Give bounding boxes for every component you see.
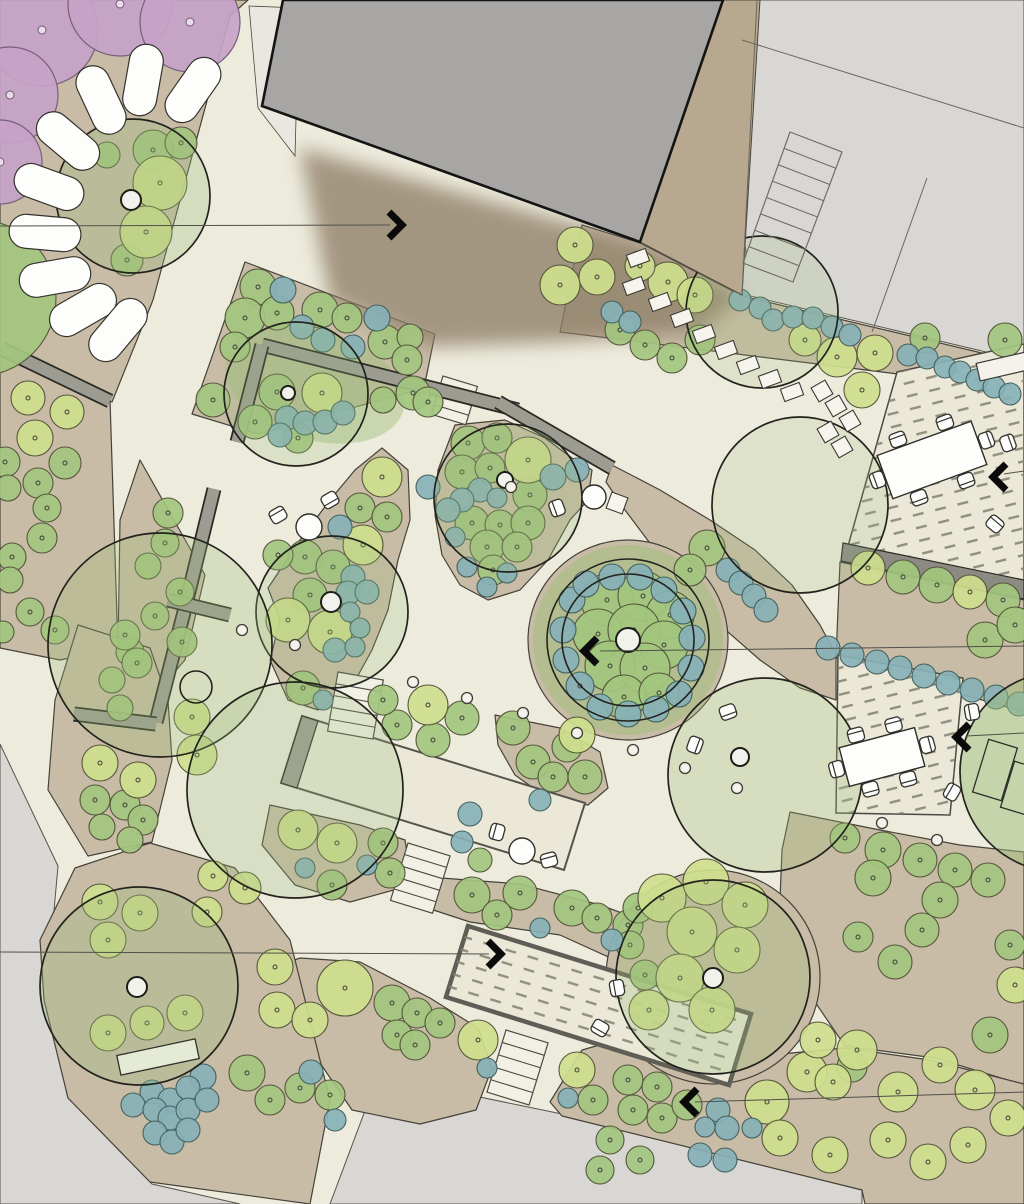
shrub-blue-circle (619, 311, 641, 333)
tree-trunk (281, 386, 295, 400)
shrub-blue-circle (688, 1143, 712, 1167)
path-light (462, 693, 473, 704)
shrub-green-circle (416, 723, 450, 757)
shrub-yellow-green-circle (557, 227, 593, 263)
shrub-yellow-green-circle (953, 575, 987, 609)
round-table (509, 838, 535, 864)
shrub-green-circle (972, 1017, 1008, 1053)
shrub-blue-circle (477, 577, 497, 597)
shrub-green-circle (117, 827, 143, 853)
shrub-green-circle (568, 760, 602, 794)
shrub-green-circle (538, 762, 568, 792)
path-light (877, 818, 888, 829)
white-pill-shrub (8, 213, 83, 253)
shrub-green-circle (988, 323, 1022, 357)
round-table (582, 485, 606, 509)
shrub-blue-circle (960, 678, 984, 702)
shrub-green-circle (482, 900, 512, 930)
shrub-blue-circle (558, 1088, 578, 1108)
purple-tree-center (116, 0, 124, 8)
shrub-blue-circle (670, 598, 696, 624)
shrub-blue-circle (888, 656, 912, 680)
shrub-green-circle (413, 387, 443, 417)
shrub-blue-circle (195, 1088, 219, 1112)
shrub-green-circle (153, 498, 183, 528)
tree-canopy (224, 322, 368, 466)
shrub-blue-circle (865, 650, 889, 674)
shrub-yellow-green-circle (362, 457, 402, 497)
shrub-yellow-green-circle (50, 395, 84, 429)
purple-tree-center (38, 26, 46, 34)
shrub-green-circle (886, 560, 920, 594)
shrub-green-circle (582, 903, 612, 933)
shrub-yellow-green-circle (990, 1100, 1024, 1136)
shrub-blue-circle (912, 664, 936, 688)
shrub-green-circle (425, 1008, 455, 1038)
tree-canopy (187, 682, 403, 898)
path-light (680, 763, 691, 774)
shrub-green-circle (445, 701, 479, 735)
shrub-blue-circle (936, 671, 960, 695)
shrub-green-circle (642, 1072, 672, 1102)
shrub-yellow-green-circle (800, 1022, 836, 1058)
shrub-green-circle (255, 1085, 285, 1115)
tree-trunk (703, 968, 723, 988)
shrub-green-circle (400, 1030, 430, 1060)
shrub-green-circle (596, 1126, 624, 1154)
shrub-green-circle (315, 1080, 345, 1110)
shrub-yellow-green-circle (579, 259, 615, 295)
shrub-blue-circle (477, 1058, 497, 1078)
chair-seat (964, 703, 981, 721)
shrub-blue-circle (530, 918, 550, 938)
shrub-green-circle (0, 475, 21, 501)
purple-tree-center (0, 158, 4, 166)
shrub-green-circle (16, 598, 44, 626)
shrub-green-circle (855, 860, 891, 896)
path-light (732, 783, 743, 794)
shrub-green-circle (332, 303, 362, 333)
shrub-green-circle (368, 685, 398, 715)
round-table (296, 514, 322, 540)
shrub-blue-circle (324, 1109, 346, 1131)
shrub-blue-circle (679, 625, 705, 651)
shrub-yellow-green-circle (292, 1002, 328, 1038)
tree-trunk (127, 977, 147, 997)
shrub-green-circle (995, 930, 1024, 960)
path-light (408, 677, 419, 688)
shrub-green-circle (657, 343, 687, 373)
tree-canopy (434, 424, 582, 572)
purple-tree-center (6, 91, 14, 99)
shrub-blue-circle (897, 344, 919, 366)
shrub-blue-circle (651, 577, 677, 603)
shrub-blue-circle (529, 789, 551, 811)
shrub-green-circle (49, 447, 81, 479)
shrub-yellow-green-circle (120, 762, 156, 798)
shrub-yellow-green-circle (17, 420, 53, 456)
shrub-yellow-green-circle (762, 1120, 798, 1156)
shrub-yellow-green-circle (559, 1052, 595, 1088)
shrub-yellow-green-circle (857, 335, 893, 371)
shrub-yellow-green-circle (257, 949, 293, 985)
shrub-blue-circle (999, 383, 1021, 405)
shrub-green-circle (903, 843, 937, 877)
shrub-yellow-green-circle (837, 1030, 877, 1070)
shrub-blue-circle (270, 277, 296, 303)
shrub-yellow-green-circle (878, 1072, 918, 1112)
path-light (237, 625, 248, 636)
shrub-green-circle (468, 848, 492, 872)
shrub-yellow-green-circle (910, 1144, 946, 1180)
shrub-green-circle (33, 494, 61, 522)
shrub-green-circle (345, 493, 375, 523)
site-plan-drawing (0, 0, 1024, 1204)
shrub-blue-circle (573, 571, 599, 597)
tree-canopy (712, 417, 888, 593)
purple-tree-center (186, 18, 194, 26)
shrub-blue-circle (599, 564, 625, 590)
shrub-green-circle (375, 858, 405, 888)
shrub-blue-circle (840, 643, 864, 667)
path-light (518, 708, 529, 719)
shrub-yellow-green-circle (922, 1047, 958, 1083)
shrub-blue-circle (121, 1093, 145, 1117)
shrub-green-circle (630, 330, 660, 360)
shrub-yellow-green-circle (815, 1064, 851, 1100)
shrub-green-circle (626, 1146, 654, 1174)
shrub-blue-circle (176, 1118, 200, 1142)
shrub-green-circle (27, 523, 57, 553)
shrub-green-circle (89, 814, 115, 840)
path-light (628, 745, 639, 756)
shrub-green-circle (613, 1065, 643, 1095)
path-light (932, 835, 943, 846)
shrub-green-circle (971, 863, 1005, 897)
chair-seat (609, 979, 626, 997)
chair (964, 703, 981, 721)
shrub-blue-circle (364, 305, 390, 331)
shrub-blue-circle (742, 1118, 762, 1138)
shrub-yellow-green-circle (870, 1122, 906, 1158)
shrub-blue-circle (754, 598, 778, 622)
shrub-blue-circle (839, 324, 861, 346)
shrub-green-circle (0, 567, 23, 593)
tree-trunk (731, 748, 749, 766)
shrub-yellow-green-circle (408, 685, 448, 725)
path-light (506, 482, 517, 493)
shrub-green-circle (586, 1156, 614, 1184)
shrub-green-circle (878, 945, 912, 979)
shrub-yellow-green-circle (844, 372, 880, 408)
shrub-yellow-green-circle (458, 1020, 498, 1060)
chair (609, 979, 626, 997)
shrub-green-circle (578, 1085, 608, 1115)
tree-trunk (121, 190, 141, 210)
shrub-blue-circle (553, 647, 579, 673)
shrub-yellow-green-circle (11, 381, 45, 415)
shrub-green-circle (618, 1095, 648, 1125)
shrub-green-circle (23, 468, 53, 498)
tree-trunk (616, 628, 640, 652)
shrub-green-circle (229, 1055, 265, 1091)
shrub-yellow-green-circle (82, 745, 118, 781)
shrub-blue-circle (715, 1116, 739, 1140)
shrub-green-circle (392, 345, 422, 375)
shrub-green-circle (843, 922, 873, 952)
shrub-yellow-green-circle (317, 960, 373, 1016)
shrub-blue-circle (299, 1060, 323, 1084)
shrub-green-circle (905, 913, 939, 947)
landscape-plan-canvas (0, 0, 1024, 1204)
shrub-blue-circle (713, 1148, 737, 1172)
shrub-green-circle (80, 785, 110, 815)
path-light (290, 640, 301, 651)
shrub-blue-circle (695, 1117, 715, 1137)
shrub-yellow-green-circle (540, 265, 580, 305)
shrub-blue-circle (451, 831, 473, 853)
shrub-green-circle (370, 387, 396, 413)
shrub-yellow-green-circle (812, 1137, 848, 1173)
shrub-yellow-green-circle (259, 992, 295, 1028)
shrub-green-circle (919, 567, 955, 603)
shrub-yellow-green-circle (955, 1070, 995, 1110)
shrub-green-circle (922, 882, 958, 918)
shrub-green-circle (372, 502, 402, 532)
shrub-green-circle (674, 554, 706, 586)
shrub-yellow-green-circle (745, 1080, 789, 1124)
path-light (572, 728, 583, 739)
tree-trunk (321, 592, 341, 612)
shrub-yellow-green-circle (950, 1127, 986, 1163)
shrub-blue-circle (458, 802, 482, 826)
